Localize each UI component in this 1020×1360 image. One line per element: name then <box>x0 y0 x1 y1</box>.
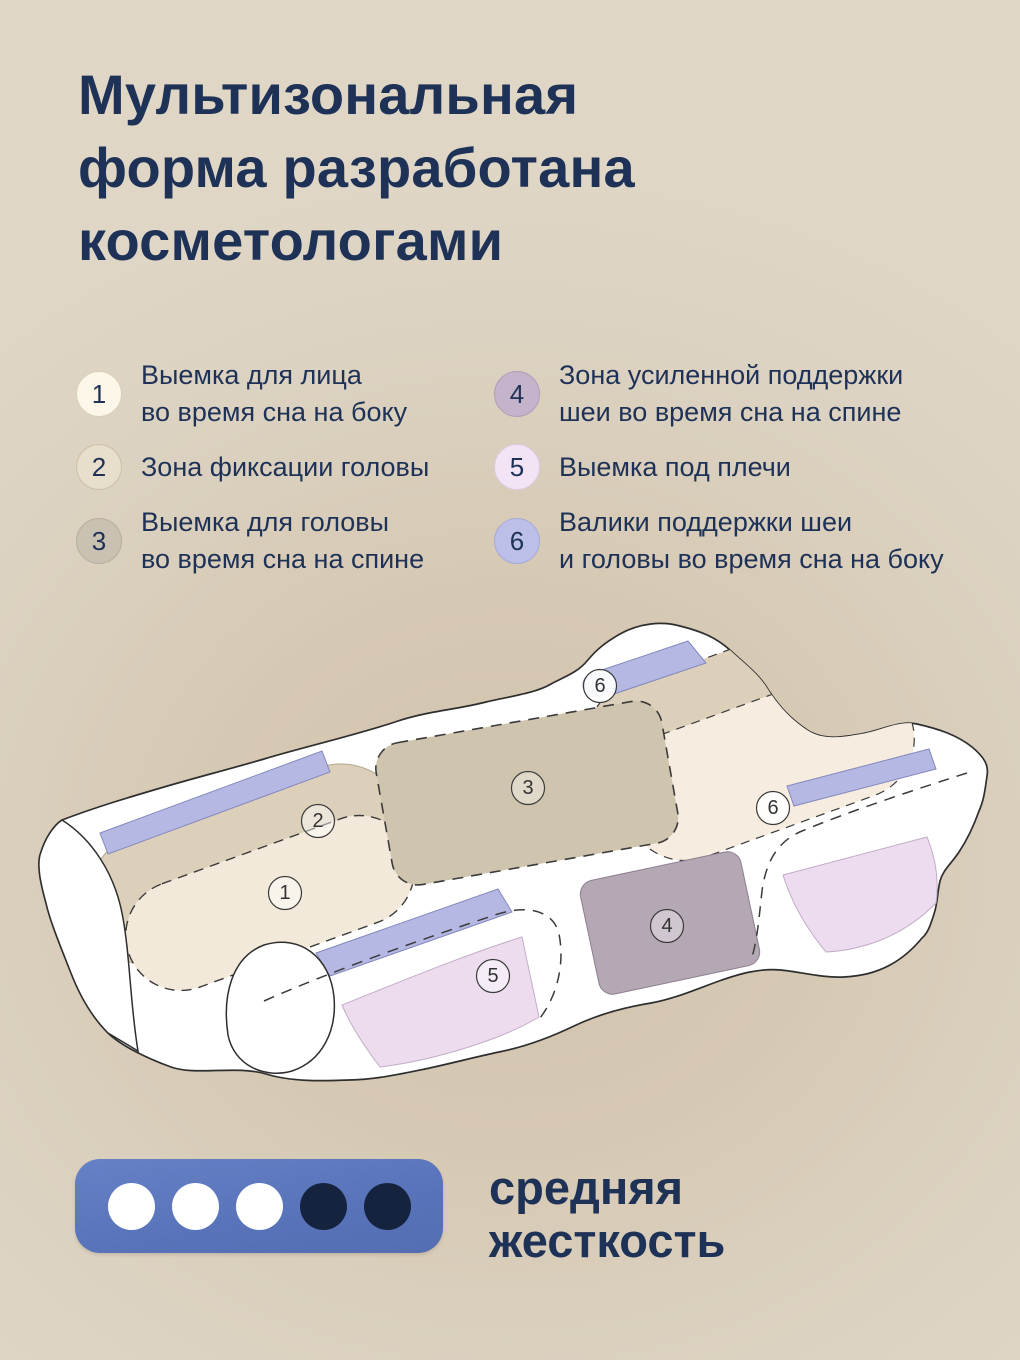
legend-number-badge-4: 4 <box>494 371 540 417</box>
marker-3: 3 <box>512 772 545 805</box>
pillow-diagram: 1 2 3 4 5 6 6 <box>30 603 990 1118</box>
firmness-dot-active <box>236 1183 283 1230</box>
marker-6-right: 6 <box>757 792 790 825</box>
page-title: Мультизональная форма разработана космет… <box>78 58 635 277</box>
firmness-dot-inactive <box>300 1183 347 1230</box>
firmness-label: средняя жесткость <box>489 1161 725 1267</box>
firmness-badge <box>75 1159 443 1253</box>
legend-number-badge-1: 1 <box>76 371 122 417</box>
marker-2: 2 <box>302 805 335 838</box>
legend-text-4: Зона усиленной поддержки шеи во время сн… <box>559 357 903 431</box>
infographic-page: Мультизональная форма разработана космет… <box>0 0 1020 1360</box>
legend-item-3: 3 Выемка для головы во время сна на спин… <box>76 504 424 578</box>
svg-text:3: 3 <box>522 777 533 799</box>
legend-text-3: Выемка для головы во время сна на спине <box>141 504 424 578</box>
legend-item-5: 5 Выемка под плечи <box>494 444 791 490</box>
svg-text:4: 4 <box>661 915 672 937</box>
svg-text:6: 6 <box>767 797 778 819</box>
legend-item-2: 2 Зона фиксации головы <box>76 444 429 490</box>
legend-number-badge-3: 3 <box>76 518 122 564</box>
marker-1: 1 <box>269 877 302 910</box>
legend-item-1: 1 Выемка для лица во время сна на боку <box>76 357 407 431</box>
legend-item-6: 6 Валики поддержки шеи и головы во время… <box>494 504 944 578</box>
firmness-dots <box>108 1183 411 1230</box>
firmness-dot-active <box>172 1183 219 1230</box>
svg-text:1: 1 <box>279 882 290 904</box>
legend-text-1: Выемка для лица во время сна на боку <box>141 357 407 431</box>
svg-text:6: 6 <box>594 675 605 697</box>
svg-text:5: 5 <box>487 965 498 987</box>
legend-number-badge-6: 6 <box>494 518 540 564</box>
firmness-dot-active <box>108 1183 155 1230</box>
svg-text:2: 2 <box>312 810 323 832</box>
legend-number-badge-2: 2 <box>76 444 122 490</box>
legend-text-2: Зона фиксации головы <box>141 449 429 486</box>
legend-text-6: Валики поддержки шеи и головы во время с… <box>559 504 944 578</box>
marker-5: 5 <box>477 960 510 993</box>
pillow-corner-cap <box>226 942 334 1073</box>
firmness-dot-inactive <box>364 1183 411 1230</box>
legend-text-5: Выемка под плечи <box>559 449 791 486</box>
legend-item-4: 4 Зона усиленной поддержки шеи во время … <box>494 357 903 431</box>
marker-4: 4 <box>651 910 684 943</box>
marker-6-top: 6 <box>584 670 617 703</box>
legend-number-badge-5: 5 <box>494 444 540 490</box>
